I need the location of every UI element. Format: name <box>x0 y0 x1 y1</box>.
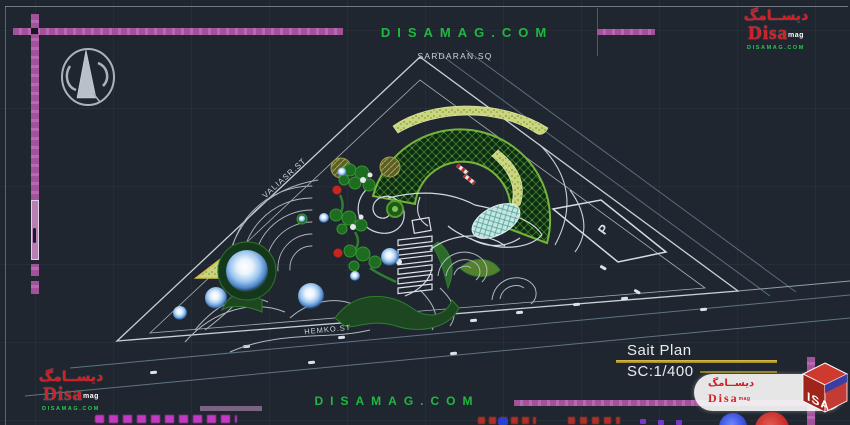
watermark-bottom: DISAMAG.COM <box>315 394 480 408</box>
magenta-line-top-left <box>13 28 343 35</box>
brand-persian-text: دیســامگ <box>28 370 114 385</box>
cad-canvas: P <box>0 0 850 425</box>
brand-logo-top-right: دیســامگ Disamag DISAMAG.COM <box>736 9 816 51</box>
brand-logo-bottom-left: دیســامگ Disamag DISAMAG.COM <box>28 370 114 412</box>
magenta-line-notch <box>31 28 38 34</box>
brand-suffix: mag <box>739 396 751 402</box>
brand-name: Disa <box>43 384 83 405</box>
cutoff-text-fragment <box>95 415 237 423</box>
frame-line-left <box>5 6 6 425</box>
cutoff-glyph <box>658 420 664 425</box>
brand-site-text: DISAMAG.COM <box>736 46 816 52</box>
stairs <box>398 218 432 294</box>
magenta-line-top-right <box>597 29 655 35</box>
scale-underline <box>700 371 777 373</box>
magenta-scalebar-segment <box>31 264 39 276</box>
cutoff-glyph <box>640 419 646 424</box>
magenta-scalebar-segment <box>31 281 39 294</box>
spiral-center-dot <box>392 206 398 212</box>
cutoff-text-fragment <box>568 417 620 424</box>
parking-label: P <box>595 221 612 237</box>
north-monument-symbol <box>58 44 120 112</box>
brand-suffix: mag <box>83 393 99 400</box>
cutoff-glyph <box>498 418 508 425</box>
parking-lot: P <box>553 200 666 262</box>
striped-barriers <box>456 164 476 185</box>
roads <box>25 50 850 396</box>
frame-line-top <box>5 6 848 7</box>
street-label-valiasr: VALIASR.ST <box>261 156 308 200</box>
square-label: SARDARAN.SQ <box>417 51 492 61</box>
magenta-scalebar-mark <box>33 228 36 243</box>
cutoff-glyph <box>676 420 682 425</box>
lavender-line-fragment <box>200 406 262 411</box>
watermark-top: DISAMAG.COM <box>381 25 553 40</box>
brand-persian-text: دیســامگ <box>736 9 816 24</box>
brand-cube-logo: ISA <box>800 360 850 416</box>
brand-site-text: DISAMAG.COM <box>28 407 114 413</box>
brand-suffix: mag <box>788 32 804 39</box>
magenta-line-left <box>31 14 39 200</box>
crescent-lawn <box>373 129 550 243</box>
brand-name: Disa <box>708 391 739 405</box>
wave-motifs <box>438 252 536 304</box>
plan-scale: SC:1/400 <box>627 363 694 380</box>
plan-title: Sait Plan <box>627 342 692 359</box>
brand-name: Disa <box>748 23 788 44</box>
